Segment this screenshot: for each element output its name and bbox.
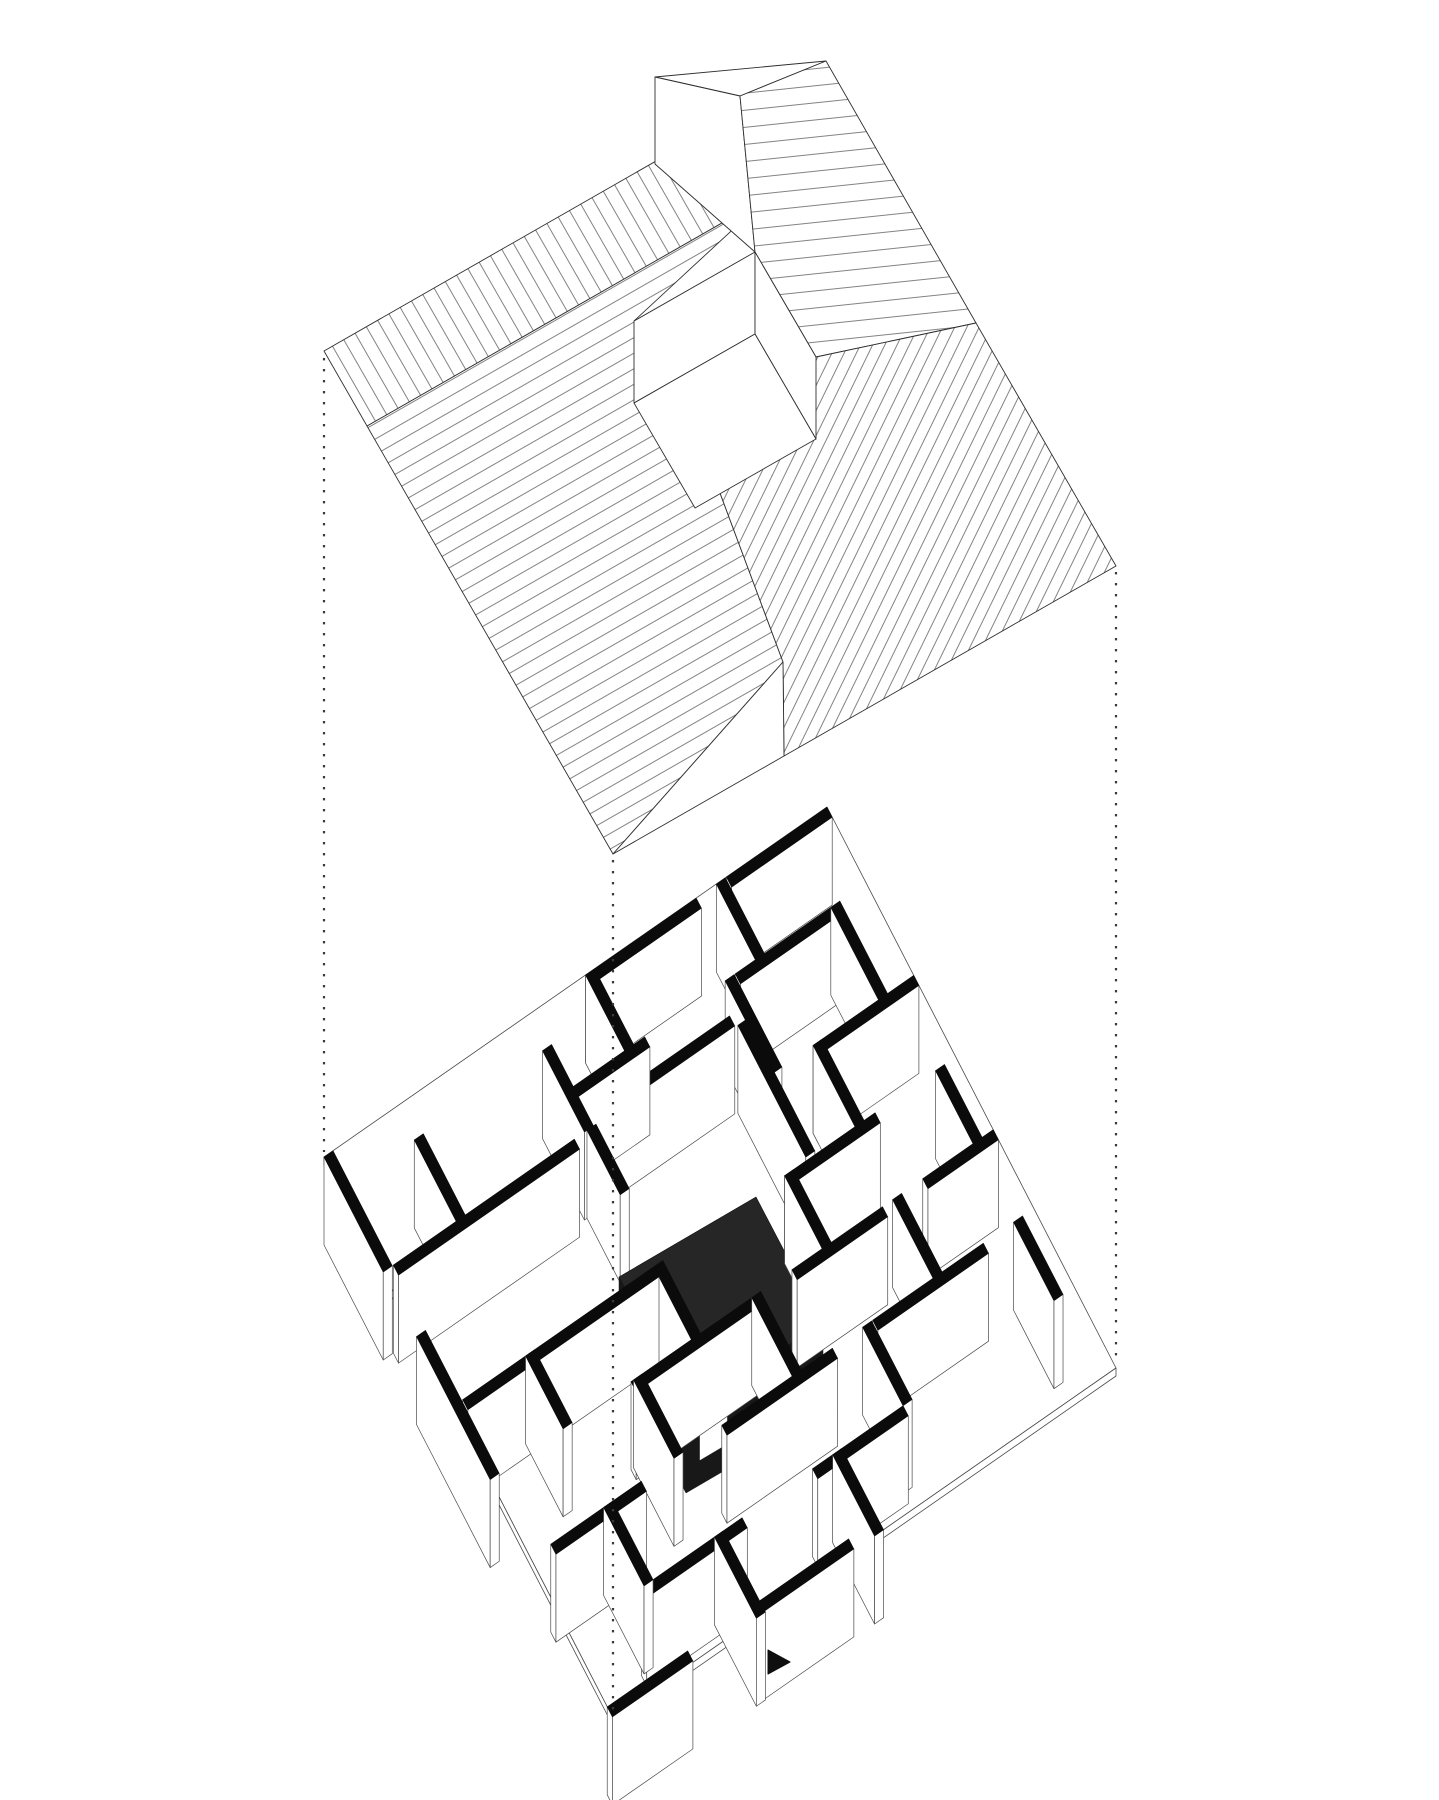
roof-assembly bbox=[324, 61, 1116, 854]
wall-end-face bbox=[551, 1544, 556, 1642]
wall-end-face bbox=[620, 1188, 629, 1282]
architectural-axonometric-page bbox=[0, 0, 1439, 1800]
wall-end-face bbox=[563, 1423, 572, 1517]
wall-end-face bbox=[644, 1580, 653, 1674]
exploded-axonometric-diagram bbox=[0, 0, 1439, 1800]
wall-end-face bbox=[674, 1452, 683, 1546]
wall-end-face bbox=[383, 1266, 392, 1360]
wall-end-face bbox=[722, 1425, 727, 1523]
wall-end-face bbox=[813, 1469, 818, 1567]
floor-plan-assembly bbox=[324, 807, 1116, 1800]
wall-end-face bbox=[756, 1612, 765, 1706]
wall-end-face bbox=[607, 1707, 612, 1800]
wall-end-face bbox=[875, 1530, 884, 1624]
wall-end-face bbox=[1054, 1294, 1063, 1388]
wall-end-face bbox=[490, 1473, 499, 1567]
wall-end-face bbox=[393, 1265, 398, 1363]
